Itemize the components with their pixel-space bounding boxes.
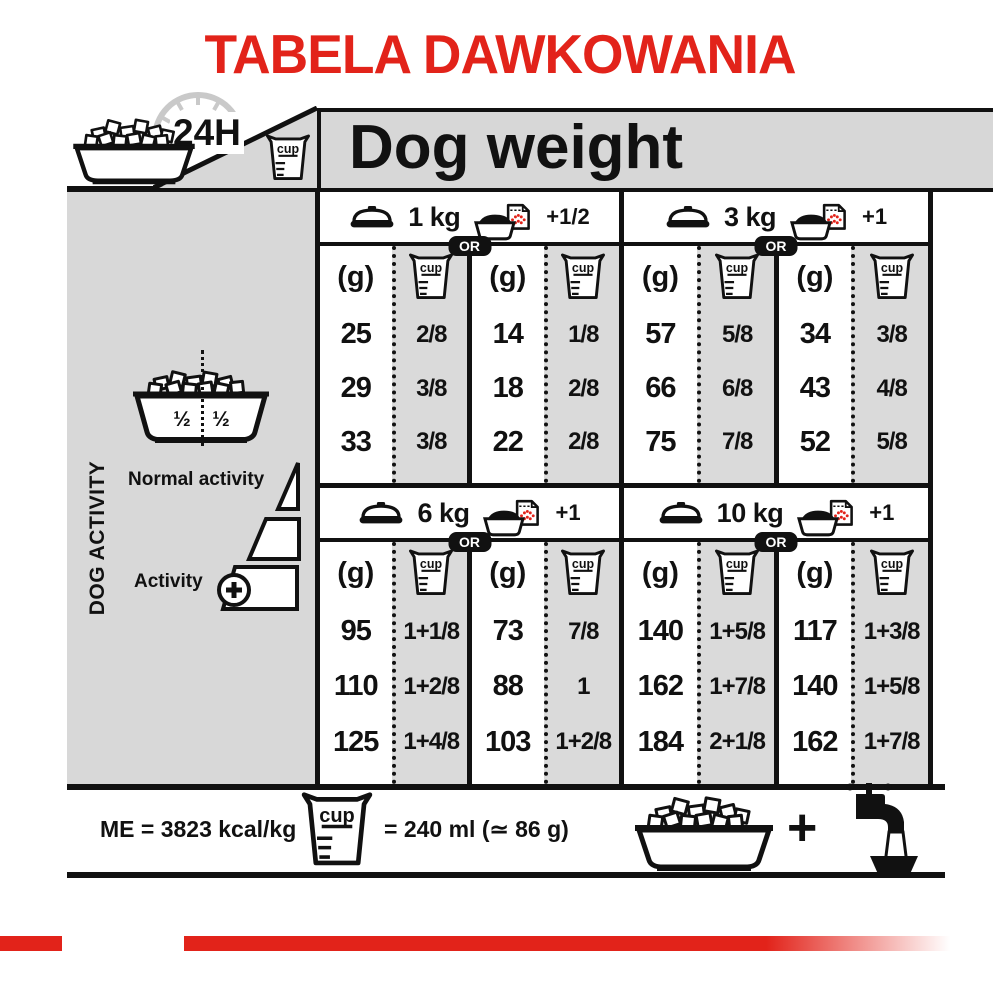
grams-column: (g) 95 110 125: [320, 542, 392, 784]
section-body: (g) 25 29 33 2/8 3/8 3/8 (g) 14 18 22: [320, 246, 619, 483]
grams-value: 95: [320, 604, 392, 659]
section-header: 3 kg +1 OR: [624, 192, 928, 246]
weight-label: 10 kg: [717, 498, 784, 529]
grams-value: 57: [624, 308, 697, 362]
dog-activity-vertical-label: DOG ACTIVITY: [86, 448, 114, 628]
cup-value: 1+7/8: [855, 715, 928, 770]
grams-column-with-pouch: (g) 34 43 52: [774, 246, 852, 483]
bowl-pouch-icon: [796, 498, 856, 538]
grams-value: 110: [320, 659, 392, 714]
grams-value: 125: [320, 715, 392, 770]
dosing-table-page: TABELA DAWKOWANIA 24H Dog weight DOG ACT…: [0, 0, 1000, 1000]
activity-step-medium: [246, 516, 302, 562]
dog-weight-band: Dog weight: [317, 108, 993, 188]
divider-footer-top: [67, 784, 945, 790]
extra-portion-label: +1: [555, 500, 580, 526]
grams-value: 66: [624, 362, 697, 416]
cup-value: 6/8: [701, 362, 774, 416]
activity-label: Activity: [134, 571, 203, 593]
weight-label: 6 kg: [417, 498, 469, 529]
grams-header: (g): [320, 542, 392, 604]
grams-value: 29: [320, 362, 392, 416]
grams-value: 162: [779, 715, 852, 770]
grams-value: 184: [624, 715, 697, 770]
bowl-pouch-icon: [789, 202, 849, 242]
sun-icon: [76, 366, 124, 414]
empty-bowl-icon: [658, 501, 704, 526]
normal-activity-label: Normal activity: [128, 469, 264, 491]
section-header: 10 kg +1 OR: [624, 488, 928, 542]
weight-label: 3 kg: [724, 202, 776, 233]
cup-icon: [561, 548, 605, 598]
dog-weight-title: Dog weight: [321, 112, 993, 184]
grams-value: 33: [320, 415, 392, 469]
cup-value: 3/8: [855, 308, 928, 362]
grams-header: (g): [624, 542, 697, 604]
empty-bowl-icon: [358, 501, 404, 526]
grams-header: (g): [624, 246, 697, 308]
cup-column: 1+1/8 1+2/8 1+4/8: [392, 542, 468, 784]
activity-step-small: [275, 460, 301, 512]
cup-value: 2/8: [396, 308, 468, 362]
cup-value: 1+2/8: [548, 715, 620, 770]
dog-activity-panel: DOG ACTIVITY Normal activity Activity: [67, 192, 315, 784]
grams-value: 34: [779, 308, 852, 362]
section-body: (g) 140 162 184 1+5/8 1+7/8 2+1/8 (g) 11…: [624, 542, 928, 784]
cup-icon: [561, 252, 605, 302]
cup-column-with-pouch: 1+3/8 1+5/8 1+7/8: [851, 542, 928, 784]
grams-column-with-pouch: (g) 73 88 103: [467, 542, 544, 784]
cup-equivalence-label: = 240 ml (≃ 86 g): [384, 816, 569, 843]
grams-value: 22: [472, 415, 544, 469]
grams-value: 52: [779, 415, 852, 469]
grams-value: 140: [779, 659, 852, 714]
metabolizable-energy-label: ME = 3823 kcal/kg: [100, 816, 296, 843]
cup-value: 2/8: [548, 415, 620, 469]
cup-column: 2/8 3/8 3/8: [392, 246, 468, 483]
split-dotted-line: [201, 350, 204, 446]
cup-value: 3/8: [396, 362, 468, 416]
cup-icon: [266, 133, 310, 183]
moon-icon: [268, 368, 302, 416]
cup-column-with-pouch: 1/8 2/8 2/8: [544, 246, 620, 483]
grams-value: 73: [472, 604, 544, 659]
cup-value: 1+4/8: [396, 715, 468, 770]
grams-value: 117: [779, 604, 852, 659]
grams-value: 103: [472, 715, 544, 770]
extra-portion-label: +1/2: [546, 204, 589, 230]
section-header: 1 kg +1/2 OR: [320, 192, 619, 246]
cup-value: 5/8: [701, 308, 774, 362]
grams-value: 43: [779, 362, 852, 416]
section-header: 6 kg +1 OR: [320, 488, 619, 542]
grams-header: (g): [320, 246, 392, 308]
cup-value: 7/8: [548, 604, 620, 659]
or-badge: OR: [755, 236, 798, 256]
cup-value: 1/8: [548, 308, 620, 362]
section-body: (g) 95 110 125 1+1/8 1+2/8 1+4/8 (g) 73 …: [320, 542, 619, 784]
cup-value: 1+3/8: [855, 604, 928, 659]
grams-column: (g) 57 66 75: [624, 246, 697, 483]
dosage-table: 1 kg +1/2 OR (g) 25 29 33 2/8 3/8 3/8: [315, 192, 933, 784]
grams-value: 140: [624, 604, 697, 659]
grams-column: (g) 140 162 184: [624, 542, 697, 784]
cup-column-with-pouch: 3/8 4/8 5/8: [851, 246, 928, 483]
food-bowl-icon: [68, 112, 200, 186]
cup-value: 2/8: [548, 362, 620, 416]
grams-value: 75: [624, 415, 697, 469]
grams-value: 162: [624, 659, 697, 714]
weight-label: 1 kg: [408, 202, 460, 233]
grams-column-with-pouch: (g) 117 140 162: [774, 542, 852, 784]
water-tap-icon: [822, 780, 918, 876]
cup-column: 1+5/8 1+7/8 2+1/8: [697, 542, 774, 784]
cup-value: 1+1/8: [396, 604, 468, 659]
cup-header: [855, 246, 928, 308]
cup-icon: [409, 252, 453, 302]
extra-portion-label: +1: [862, 204, 887, 230]
red-band-left: [0, 936, 62, 951]
cup-column: 5/8 6/8 7/8: [697, 246, 774, 483]
plus-sign: +: [787, 798, 817, 858]
cup-icon: [715, 252, 759, 302]
grams-value: 14: [472, 308, 544, 362]
grams-value: 25: [320, 308, 392, 362]
cup-header: [548, 542, 620, 604]
cup-value: 1+2/8: [396, 659, 468, 714]
food-bowl-icon: [628, 790, 780, 872]
cup-icon: [870, 548, 914, 598]
plus-circle-icon: [214, 570, 254, 610]
cup-icon: [409, 548, 453, 598]
red-band-right: [184, 936, 950, 951]
weight-section-1kg: 1 kg +1/2 OR (g) 25 29 33 2/8 3/8 3/8: [320, 192, 624, 488]
cup-value: 1+7/8: [701, 659, 774, 714]
cup-value: 5/8: [855, 415, 928, 469]
section-body: (g) 57 66 75 5/8 6/8 7/8 (g) 34 43 52: [624, 246, 928, 483]
grams-column-with-pouch: (g) 14 18 22: [467, 246, 544, 483]
grams-value: 18: [472, 362, 544, 416]
cup-value: 3/8: [396, 415, 468, 469]
weight-section-10kg: 10 kg +1 OR (g) 140 162 184 1+5/8 1+7/8 …: [624, 488, 928, 784]
page-title: TABELA DAWKOWANIA: [15, 22, 985, 86]
cup-value: 2+1/8: [701, 715, 774, 770]
weight-section-3kg: 3 kg +1 OR (g) 57 66 75 5/8 6/8 7/8: [624, 192, 928, 488]
grams-value: 88: [472, 659, 544, 714]
or-badge: OR: [448, 532, 491, 552]
or-badge: OR: [755, 532, 798, 552]
empty-bowl-icon: [665, 205, 711, 230]
cup-value: 1+5/8: [701, 604, 774, 659]
bowl-pouch-icon: [482, 498, 542, 538]
cup-value: 1: [548, 659, 620, 714]
extra-portion-label: +1: [869, 500, 894, 526]
cup-icon: [870, 252, 914, 302]
grams-column: (g) 25 29 33: [320, 246, 392, 483]
cup-value: 4/8: [855, 362, 928, 416]
cup-icon: [300, 790, 374, 870]
empty-bowl-icon: [349, 205, 395, 230]
weight-section-6kg: 6 kg +1 OR (g) 95 110 125 1+1/8 1+2/8 1+…: [320, 488, 624, 784]
cup-icon: [715, 548, 759, 598]
cup-column-with-pouch: 7/8 1 1+2/8: [544, 542, 620, 784]
cup-value: 7/8: [701, 415, 774, 469]
cup-header: [855, 542, 928, 604]
paw-logo: [66, 908, 178, 972]
cup-value: 1+5/8: [855, 659, 928, 714]
or-badge: OR: [448, 236, 491, 256]
cup-header: [548, 246, 620, 308]
divider-footer-bottom: [67, 872, 945, 878]
